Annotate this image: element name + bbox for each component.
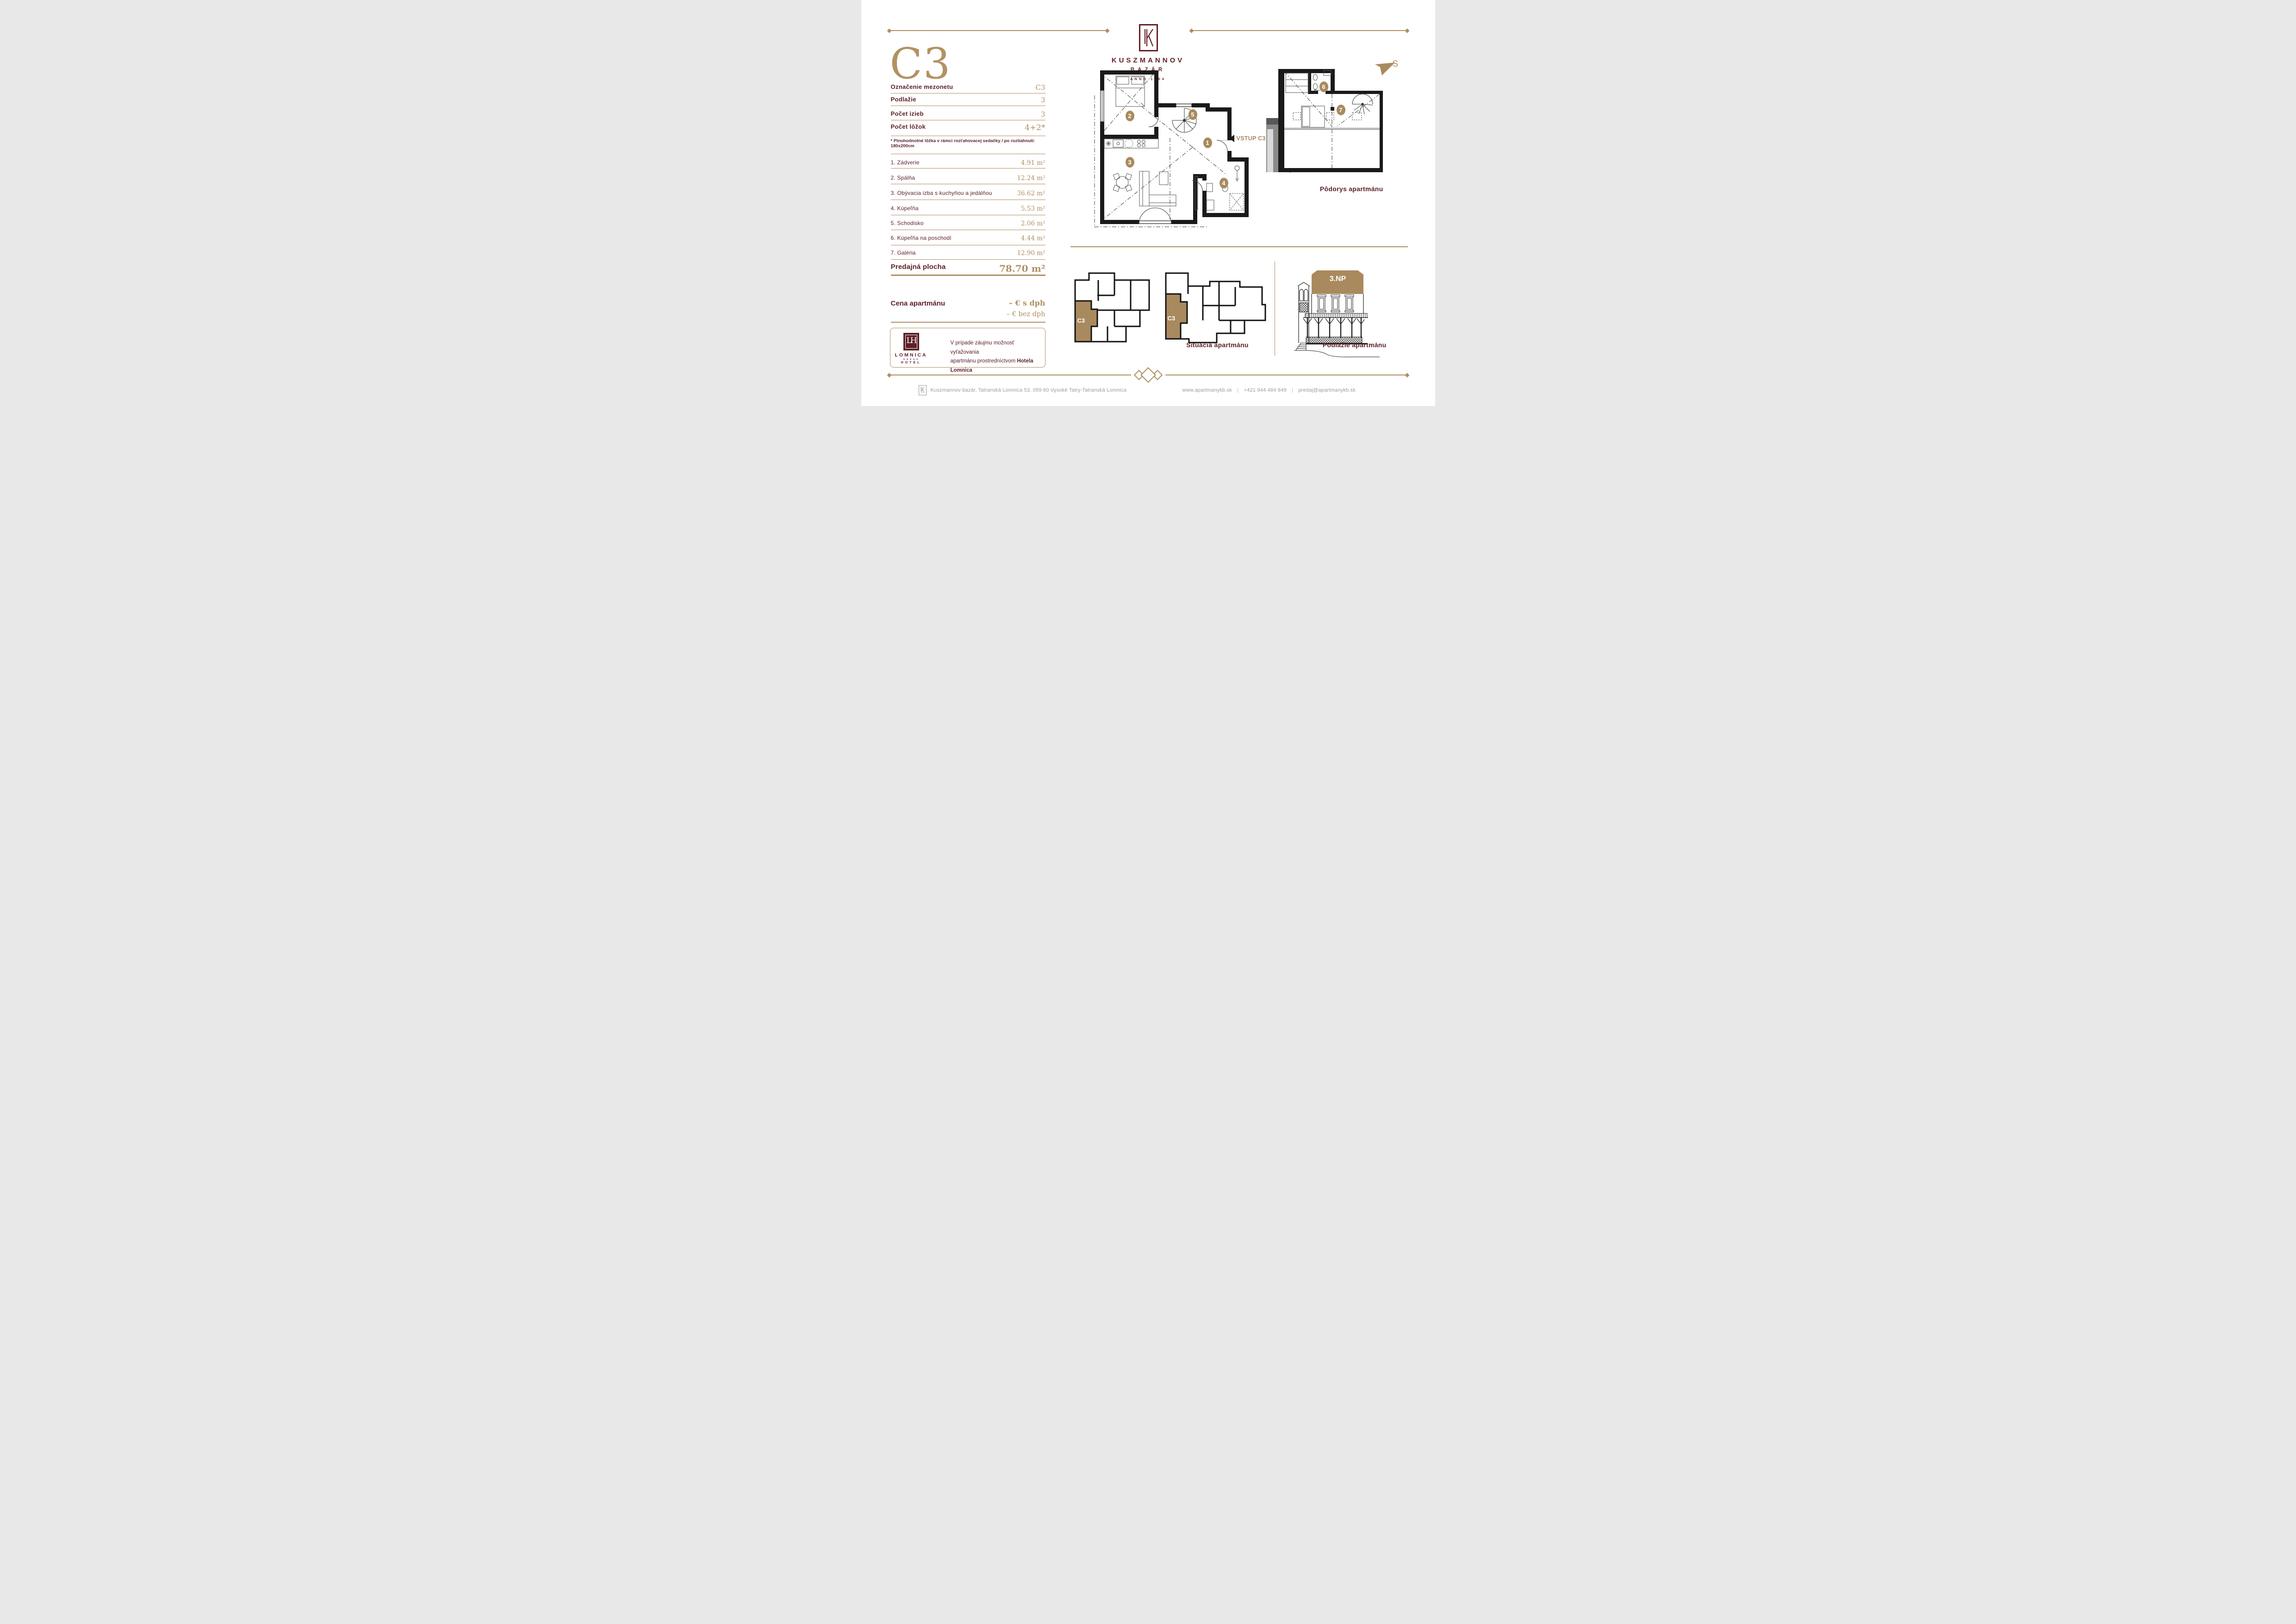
- bed-upper: [1293, 106, 1362, 127]
- footer-rule-left: [889, 375, 1131, 375]
- footer-diamond-ornament-icon: [1132, 367, 1164, 383]
- situation-unit-label: C3: [1077, 317, 1085, 324]
- windows: [1317, 295, 1354, 312]
- roof-projection-lines: [1095, 73, 1227, 228]
- room-marker: 1: [1203, 137, 1212, 148]
- situation-plan-upper: [1161, 269, 1270, 347]
- marker-number: 4: [1222, 180, 1225, 187]
- section-divider-horizontal: [1070, 246, 1408, 247]
- area-unit: m²: [1037, 190, 1045, 197]
- room-marker: 2: [1126, 111, 1134, 121]
- floor-plan-lower: [1093, 69, 1259, 228]
- situation-plan-floor: [1070, 269, 1156, 347]
- gallery-railing: [1284, 128, 1380, 130]
- area-value: 5.53: [1021, 205, 1035, 212]
- total-unit: m²: [1032, 263, 1045, 274]
- marker-number: 3: [1128, 159, 1131, 166]
- footer-email-link[interactable]: predaj@apartmanykb.sk: [1298, 387, 1356, 393]
- spec-label: Počet lôžok: [891, 123, 926, 130]
- spiral-staircase-upper: [1352, 94, 1373, 114]
- diamond-tip-icon: [1105, 28, 1109, 33]
- room-row: 1. Zádverie 4.91 m²: [891, 159, 1045, 169]
- situation-unit-label: C3: [1168, 315, 1176, 322]
- diamond-tip-icon: [887, 373, 891, 377]
- room-row: 2. Spálňa 12.24 m²: [891, 175, 1045, 184]
- room-name: 1. Zádverie: [891, 159, 920, 166]
- room-row: 3. Obývacia izba s kuchyňou a jedálňou 3…: [891, 190, 1045, 200]
- room-name: 6. Kúpeľňa na poschodí: [891, 235, 952, 241]
- floor-badge: 3.NP: [1313, 275, 1363, 283]
- price-label: Cena apartmánu: [891, 299, 946, 322]
- entry-label: VSTUP C3: [1229, 135, 1266, 142]
- structural-post: [1331, 107, 1334, 111]
- spec-value: 4+2*: [1025, 123, 1045, 132]
- wardrobe: [1286, 73, 1309, 93]
- room-area: 5.53 m²: [1021, 205, 1045, 212]
- diamond-tip-icon: [1189, 28, 1194, 33]
- marker-number: 2: [1128, 112, 1131, 119]
- area-unit: m²: [1037, 235, 1045, 242]
- room-area: 36.62 m²: [1017, 190, 1045, 197]
- hotel-offer-text: V prípade záujmu možnosť vyťažovania apa…: [951, 339, 1041, 375]
- room-row: 6. Kúpeľňa na poschodí 4.44 m²: [891, 235, 1045, 245]
- hotel-name: LOMNICA: [893, 352, 929, 358]
- diamond-tip-icon: [1405, 373, 1409, 377]
- room-name: 3. Obývacia izba s kuchyňou a jedálňou: [891, 190, 992, 196]
- floor-plan-caption: Pôdorys apartmánu: [1291, 185, 1383, 193]
- beds-note: * Plnohodnotné lôžka v rámci rozťahovace…: [891, 138, 1048, 149]
- marker-number: 6: [1322, 83, 1325, 90]
- area-unit: m²: [1037, 205, 1045, 212]
- area-value: 12.24: [1017, 175, 1035, 182]
- spec-row: Označenie mezonetu C3: [891, 83, 1045, 94]
- kitchen: [1104, 139, 1158, 148]
- room-marker: 6: [1319, 81, 1328, 92]
- separator: |: [1292, 387, 1293, 393]
- footer-monogram-icon: [919, 385, 927, 395]
- hotel-stars: ✶✶✶✶✶: [893, 358, 929, 361]
- room-area: 4.44 m²: [1021, 235, 1045, 242]
- situation-caption: Situácia apartmánu: [1167, 341, 1269, 349]
- spec-value: 3: [1041, 96, 1045, 104]
- spec-value: C3: [1035, 83, 1045, 92]
- footer-contacts: www.apartmanykb.sk | +421 944 484 849 | …: [1182, 387, 1356, 393]
- diamond-tip-icon: [887, 28, 891, 33]
- apartment-sheet-page: KUSZMANNOV BAZÁR ANNO 1904 S C3 Označeni…: [861, 0, 1435, 406]
- room-area: 4.91 m²: [1021, 159, 1045, 167]
- hotel-text-line1: V prípade záujmu možnosť vyťažovania: [951, 340, 1014, 355]
- room-marker: 7: [1337, 105, 1345, 115]
- header-rule-right: [1191, 30, 1408, 31]
- bed: [1116, 76, 1145, 106]
- price-row: Cena apartmánu – € s dph – € bez dph: [891, 299, 1045, 323]
- total-area-row: Predajná plocha 78.70 m²: [891, 263, 1045, 276]
- area-unit: m²: [1037, 175, 1045, 182]
- walls: [1278, 69, 1383, 172]
- spec-label: Označenie mezonetu: [891, 83, 953, 90]
- footer-website-link[interactable]: www.apartmanykb.sk: [1182, 387, 1232, 393]
- spec-row: Počet izieb 3: [891, 110, 1045, 120]
- apartment-title: C3: [890, 43, 952, 85]
- room-name: 7. Galéria: [891, 250, 916, 256]
- marker-number: 7: [1339, 106, 1342, 113]
- spec-row: Podlažie 3: [891, 96, 1045, 106]
- section-divider-vertical: [1275, 262, 1276, 356]
- footer-rule-right: [1165, 375, 1408, 375]
- sofa: [1139, 171, 1176, 206]
- room-area: 2.06 m²: [1021, 220, 1045, 227]
- ground-line: [1294, 350, 1380, 357]
- room-row: 5. Schodisko 2.06 m²: [891, 220, 1045, 230]
- area-value: 2.06: [1021, 220, 1035, 227]
- area-unit: m²: [1037, 159, 1045, 167]
- brand-name: KUSZMANNOV: [1102, 56, 1195, 64]
- footer-phone: +421 944 484 849: [1244, 387, 1287, 393]
- spec-value: 3: [1041, 110, 1045, 119]
- hotel-lomnica-logo-icon: LH: [903, 333, 919, 350]
- veranda-roof: [1303, 313, 1368, 318]
- footer-address: Kuszmannov bazár, Tatranská Lomnica 53, …: [931, 387, 1127, 393]
- area-value: 12.90: [1017, 250, 1035, 257]
- area-unit: m²: [1037, 250, 1045, 257]
- hotel-lomnica-box: LH LOMNICA ✶✶✶✶✶ HOTEL V prípade záujmu …: [890, 328, 1045, 368]
- marker-number: 5: [1191, 111, 1194, 118]
- spec-label: Počet izieb: [891, 110, 924, 117]
- entry-text: VSTUP C3: [1237, 135, 1266, 142]
- price-without-vat: – € bez dph: [1007, 311, 1045, 318]
- room-name: 5. Schodisko: [891, 220, 924, 226]
- room-area: 12.90 m²: [1017, 250, 1045, 257]
- header-rule-left: [889, 30, 1108, 31]
- total-label: Predajná plocha: [891, 263, 946, 271]
- separator: |: [1237, 387, 1238, 393]
- room-marker: 3: [1126, 157, 1134, 168]
- marker-number: 1: [1206, 139, 1209, 146]
- post-braces: [1303, 319, 1364, 324]
- veranda-posts: [1307, 318, 1361, 338]
- hotel-word: HOTEL: [893, 361, 929, 364]
- area-unit: m²: [1037, 220, 1045, 227]
- room-row: 4. Kúpeľňa 5.53 m²: [891, 205, 1045, 215]
- dining-table: [1113, 173, 1132, 191]
- area-value: 4.91: [1021, 159, 1035, 167]
- spec-label: Podlažie: [891, 96, 916, 103]
- elevation-caption: Podlažie apartmánu: [1294, 341, 1387, 349]
- window-openings: [1100, 90, 1192, 225]
- kuszmannov-monogram-icon: [1139, 24, 1158, 51]
- area-value: 4.44: [1021, 235, 1035, 242]
- total-area: 78.70 m²: [999, 263, 1045, 274]
- room-row: 7. Galéria 12.90 m²: [891, 250, 1045, 260]
- room-name: 2. Spálňa: [891, 175, 915, 181]
- hotel-monogram: LH: [903, 336, 919, 345]
- compass-label: S: [1393, 59, 1399, 69]
- diamond-tip-icon: [1405, 28, 1409, 33]
- entry-arrow-icon: [1229, 135, 1234, 142]
- total-value: 78.70: [999, 263, 1028, 274]
- price-values: – € s dph – € bez dph: [1007, 299, 1045, 322]
- area-value: 36.62: [1017, 190, 1035, 197]
- price-with-vat: – € s dph: [1007, 299, 1045, 307]
- spec-row: Počet lôžok 4+2*: [891, 123, 1045, 136]
- divider: [891, 154, 1045, 154]
- hotel-text-line2: apartmánu prostredníctvom: [951, 358, 1016, 364]
- room-name: 4. Kúpeľňa: [891, 205, 919, 212]
- adjacent-building-shading: [1266, 118, 1278, 172]
- room-marker: 5: [1188, 109, 1197, 120]
- room-area: 12.24 m²: [1017, 175, 1045, 182]
- room-marker: 4: [1220, 178, 1228, 188]
